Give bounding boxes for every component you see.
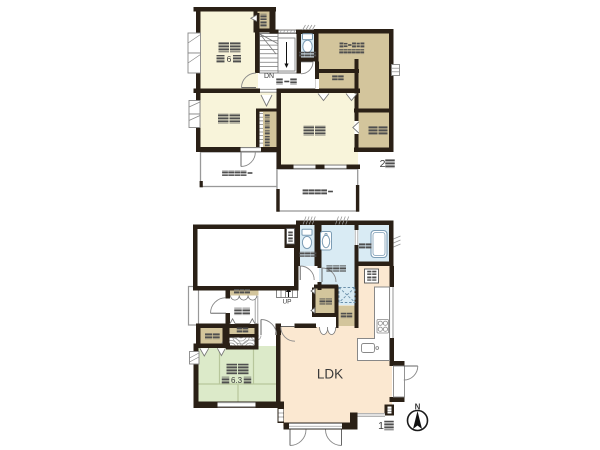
svg-text:UP: UP bbox=[282, 299, 291, 306]
svg-text:6.3: 6.3 bbox=[231, 376, 243, 385]
svg-text:1: 1 bbox=[378, 420, 384, 432]
svg-text:LDK: LDK bbox=[317, 367, 343, 382]
svg-text:6: 6 bbox=[227, 54, 232, 64]
svg-text:2: 2 bbox=[380, 158, 386, 170]
svg-text:DN: DN bbox=[264, 73, 274, 80]
